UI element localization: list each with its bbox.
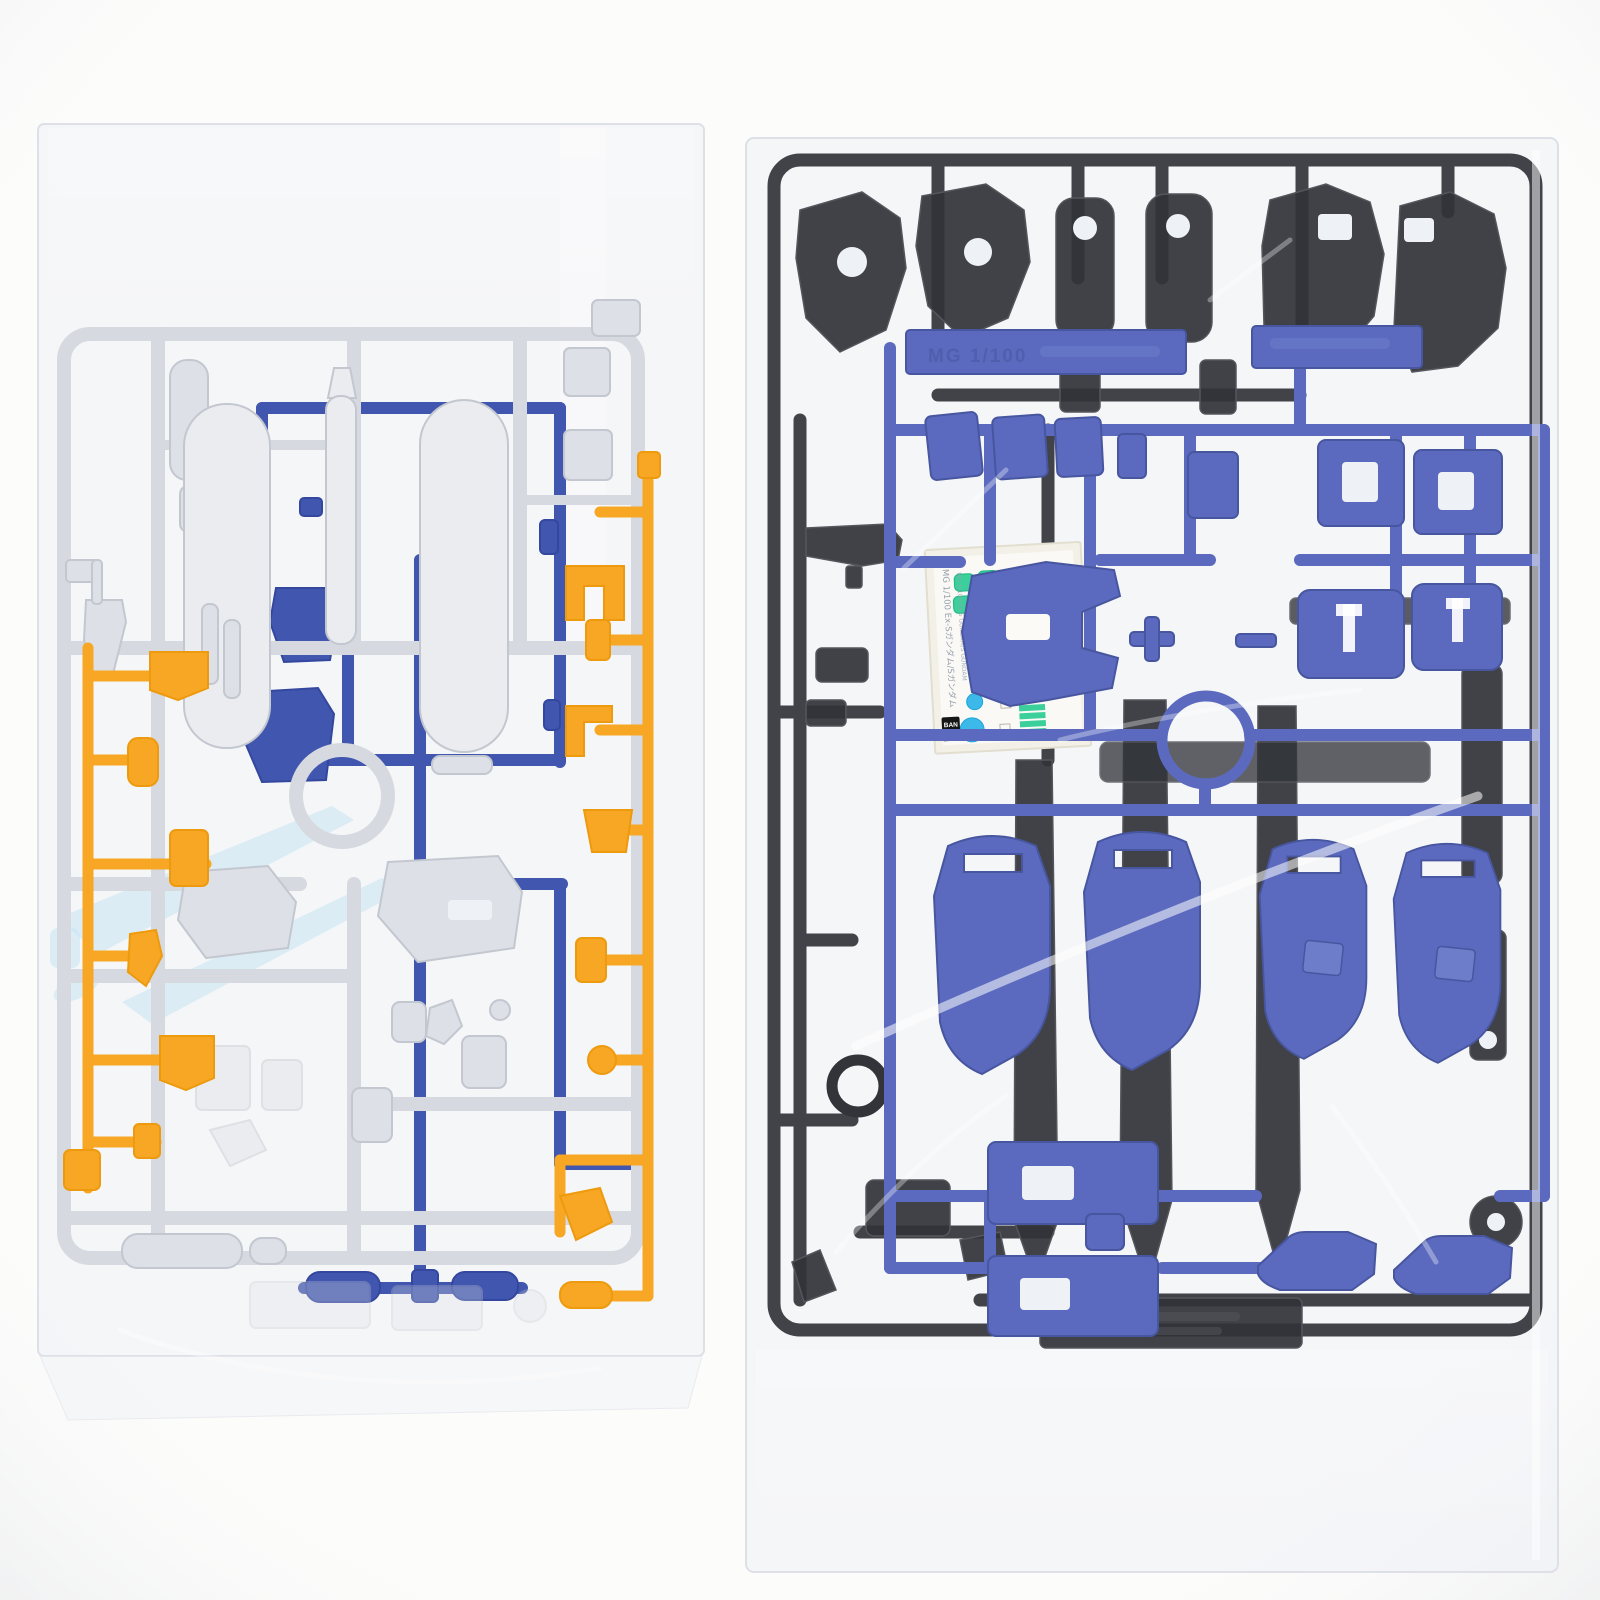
dark-beam-part bbox=[1100, 742, 1430, 782]
gray-box-part bbox=[564, 348, 610, 396]
left-parts-bag bbox=[38, 124, 704, 1420]
gray-box-part bbox=[564, 430, 612, 480]
blue-panel-part bbox=[925, 411, 983, 480]
gray-hand-part bbox=[392, 1002, 426, 1042]
blue-leg-shield bbox=[934, 836, 1050, 1074]
blue-panel-part bbox=[1055, 417, 1104, 477]
blue-t-shoulder-part bbox=[1298, 590, 1404, 678]
gray-cylinder-part bbox=[326, 396, 356, 644]
blue-tab-molded-text: MG 1/100 bbox=[928, 346, 1027, 367]
bandai-logo-line1: BAN bbox=[944, 722, 959, 730]
blue-leg-shield bbox=[1084, 832, 1200, 1070]
blue-shield-vent bbox=[1302, 940, 1343, 976]
blue-runner-label-tab: MG 1/100 bbox=[906, 330, 1186, 374]
gray-booster-part bbox=[420, 400, 508, 752]
blue-panel-part bbox=[992, 414, 1048, 479]
right-bag-edge-highlight bbox=[1532, 150, 1540, 1560]
photo-model-kit-runner-bags: MG 1/100 Ex-Sガンダム/Sガンダム MG 1/100 Ex-S GU… bbox=[0, 0, 1600, 1600]
orange-spool-part bbox=[170, 830, 208, 886]
blue-shield-vent bbox=[1434, 946, 1475, 982]
right-parts-bag: MG 1/100 Ex-Sガンダム/Sガンダム MG 1/100 Ex-S GU… bbox=[746, 138, 1558, 1572]
blue-box-part bbox=[988, 1256, 1158, 1336]
blue-t-shoulder-part bbox=[1412, 584, 1502, 670]
orange-bracket-part bbox=[160, 1036, 214, 1090]
gray-capsule-part bbox=[122, 1234, 242, 1268]
